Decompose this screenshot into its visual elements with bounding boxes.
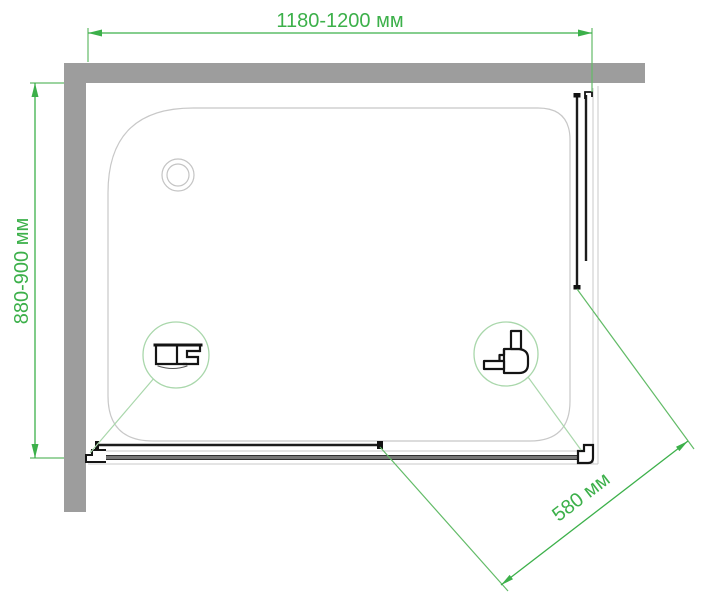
width-dimension-label: 1180-1200 мм	[276, 10, 403, 32]
arrow-down-icon	[32, 444, 39, 458]
right-door-rail	[574, 92, 594, 463]
corner-profile	[578, 445, 593, 463]
left-wall	[64, 63, 86, 512]
dimension-depth: 880-900 мм	[11, 83, 64, 458]
drawing-svg: 1180-1200 мм 880-900 мм 580 мм	[0, 0, 702, 600]
left-rail-end-profile	[86, 450, 106, 462]
entry-dimension-label: 580 мм	[548, 468, 614, 526]
shower-enclosure-drawing: 1180-1200 мм 880-900 мм 580 мм	[0, 0, 702, 600]
arrow-left-icon	[88, 30, 102, 37]
arrow-right-icon	[578, 30, 592, 37]
shower-tray	[108, 108, 570, 441]
top-wall	[78, 63, 645, 83]
depth-dimension-label: 880-900 мм	[11, 218, 33, 324]
arrow-up-icon	[32, 83, 39, 97]
